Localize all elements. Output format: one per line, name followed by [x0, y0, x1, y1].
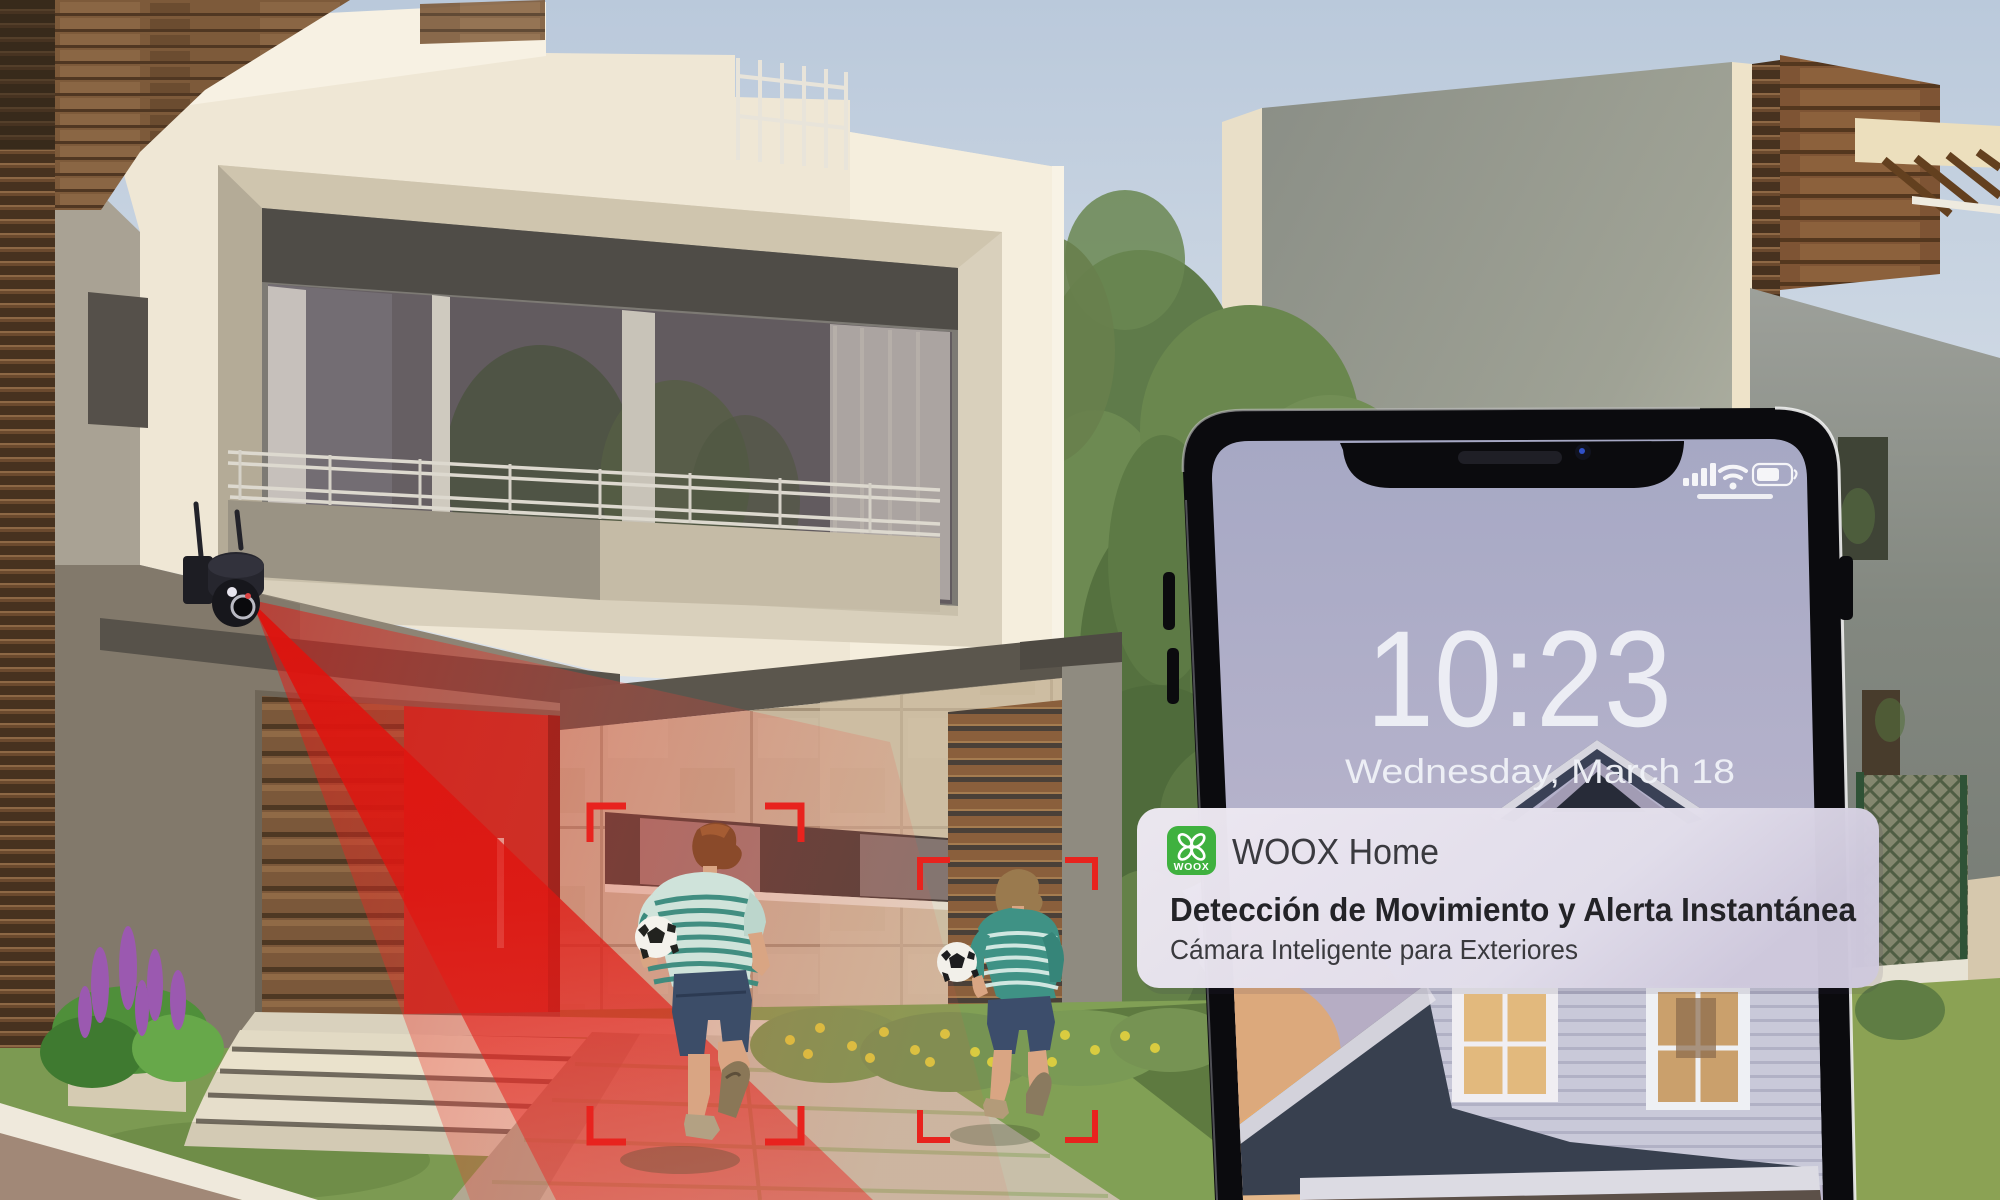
svg-text:10:23: 10:23	[1366, 603, 1672, 756]
svg-text:Cámara Inteligente para Exteri: Cámara Inteligente para Exteriores	[1170, 934, 1578, 965]
svg-text:WOOX: WOOX	[1174, 861, 1210, 873]
svg-text:Detección de Movimiento y Aler: Detección de Movimiento y Alerta Instant…	[1170, 891, 1857, 928]
svg-text:Wednesday, March 18: Wednesday, March 18	[1345, 753, 1735, 791]
svg-text:WOOX Home: WOOX Home	[1232, 831, 1439, 872]
